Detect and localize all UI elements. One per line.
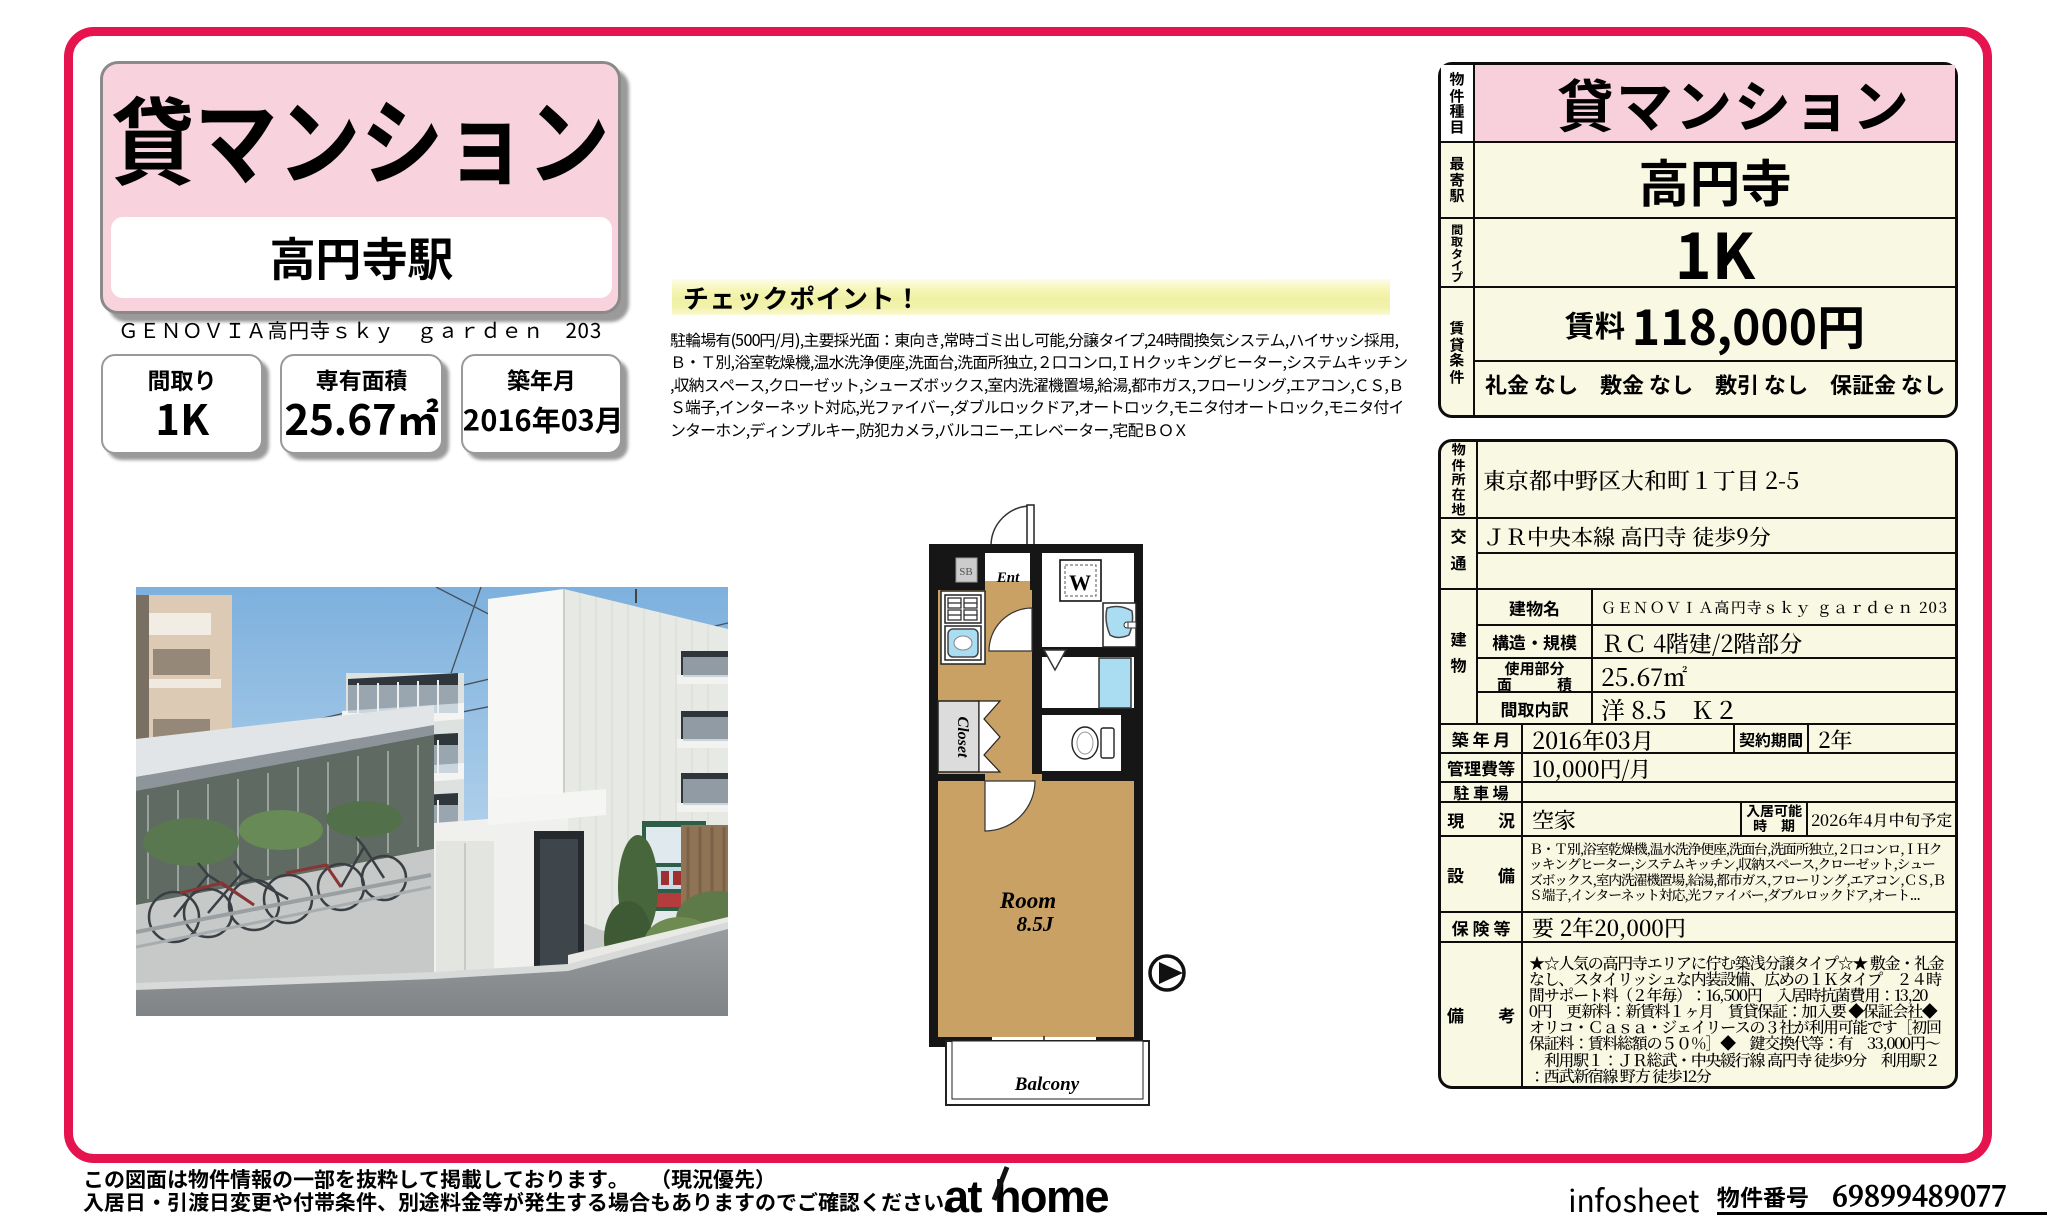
svg-text:Ent: Ent [996, 570, 1020, 586]
svg-text:at: at [944, 1171, 983, 1222]
svg-text:home: home [994, 1171, 1108, 1222]
svg-text:W: W [1069, 570, 1091, 595]
svg-text:Closet: Closet [954, 717, 971, 758]
svg-text:SB: SB [959, 566, 972, 578]
svg-text:Room: Room [999, 888, 1056, 913]
svg-text:Balcony: Balcony [1014, 1074, 1080, 1095]
svg-text:8.5J: 8.5J [1017, 912, 1055, 936]
